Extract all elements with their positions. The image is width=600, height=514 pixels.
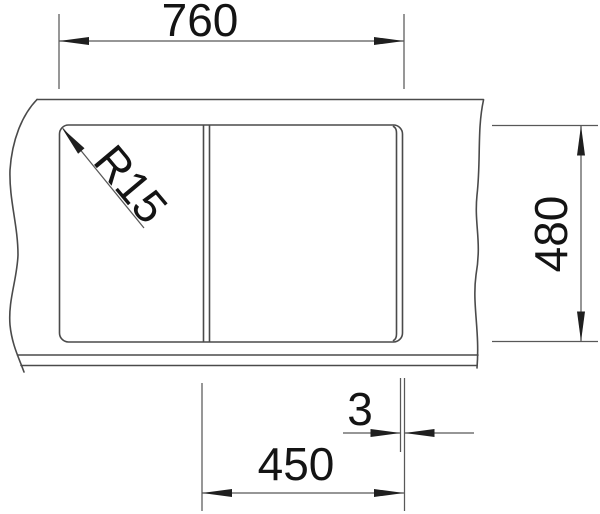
bowl-inner-right-edge xyxy=(394,127,397,341)
arrowhead-480-bottom xyxy=(577,312,585,342)
arrowhead-3-left xyxy=(371,429,401,437)
dimension-label-760: 760 xyxy=(162,0,239,46)
dimension-label-450: 450 xyxy=(258,438,335,490)
radius-label-r15: R15 xyxy=(84,135,178,233)
dimension-label-3: 3 xyxy=(347,383,373,435)
arrowhead-760-right xyxy=(374,37,404,45)
technical-drawing-canvas: 760 R15 480 3 450 xyxy=(0,0,600,514)
arrowhead-450-left xyxy=(202,489,232,497)
arrowhead-450-right xyxy=(374,489,404,497)
arrowhead-480-top xyxy=(577,126,585,156)
sink-dimension-drawing: 760 R15 480 3 450 xyxy=(0,0,600,514)
break-line-right xyxy=(475,100,484,368)
arrowhead-3-right xyxy=(405,429,435,437)
arrowhead-r15 xyxy=(62,128,85,154)
arrowhead-760-left xyxy=(59,37,89,45)
break-line-left xyxy=(10,100,37,373)
dimension-label-480: 480 xyxy=(525,196,577,273)
